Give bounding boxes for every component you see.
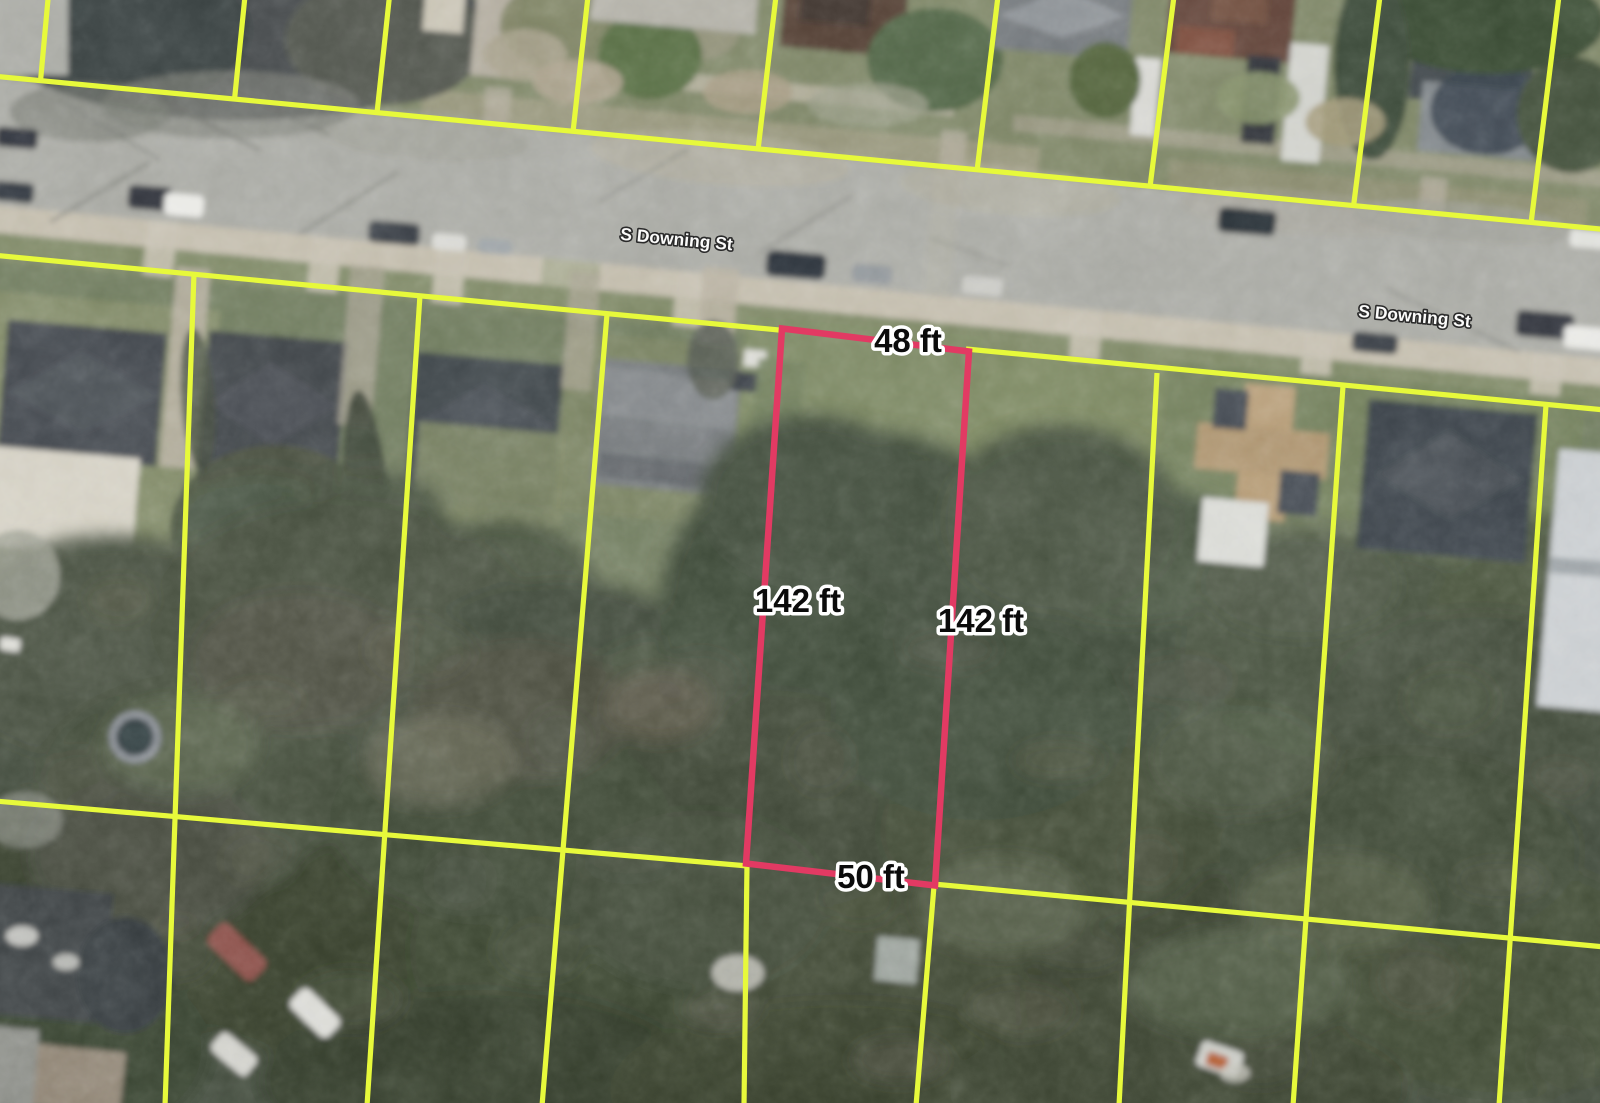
svg-text:48 ft: 48 ft bbox=[874, 322, 942, 359]
svg-text:142 ft: 142 ft bbox=[938, 602, 1024, 639]
svg-text:142 ft: 142 ft bbox=[755, 582, 841, 619]
svg-text:50 ft: 50 ft bbox=[837, 858, 905, 895]
